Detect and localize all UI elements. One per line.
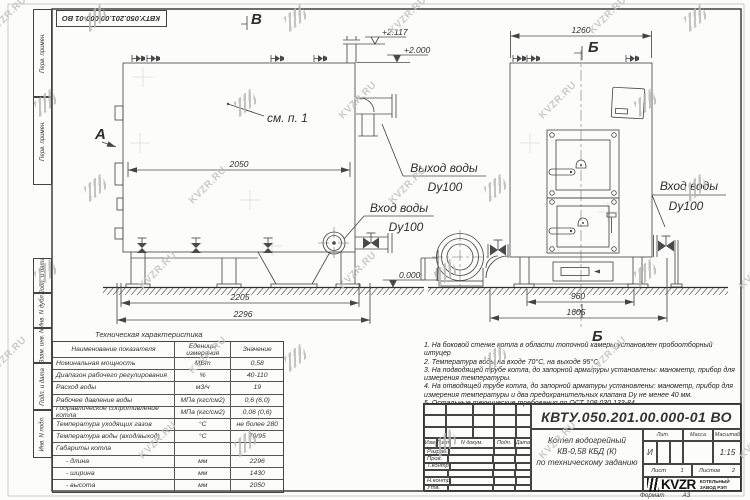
scale-header: Масштаб [713, 429, 742, 441]
boiler-front-view: 1260 Б Б [421, 25, 728, 345]
registration-crosses [130, 67, 618, 256]
kvzr-logo-text: KVZR [661, 477, 696, 492]
spec-row: Гидравлическое сопротивление котлаМПа (к… [53, 407, 283, 419]
blower-fan [421, 230, 488, 286]
sheet-value: 1 [681, 468, 684, 474]
note: 4. На отводящей трубе котла, до запорной… [424, 383, 740, 400]
top-stamp: КВТУ.050.201.00.000-01 ВО [56, 10, 167, 27]
furnace-door-lower [547, 198, 619, 253]
svg-text:см. п. 1: см. п. 1 [267, 111, 308, 125]
elevation-marks: +2.117 +2.000 0.000 [357, 27, 431, 288]
spec-table: Наименование показателя Еденицы измерени… [52, 341, 284, 493]
margin-box: Подп. и дата [33, 258, 52, 293]
elevation-mid: +2.000 [404, 45, 431, 55]
svg-text:2296: 2296 [233, 309, 253, 319]
margin-box: Подп. и дата [33, 363, 52, 410]
see-note-callout: см. п. 1 [227, 103, 308, 125]
title-block-right: Лит. Масса Масштаб И 1:15 Лист 1 Листов … [643, 429, 742, 492]
svg-text:Вход воды: Вход воды [660, 179, 718, 193]
margin-box: Взам. инв. N [33, 328, 52, 363]
org-line: ЗАВОД РЭП [700, 485, 730, 490]
top-stamp-number: КВТУ.050.201.00.000-01 ВО [62, 14, 160, 23]
spec-row: Диапазон рабочего регулирования%40-110 [53, 370, 283, 382]
inlet-valve-right-icon [654, 235, 683, 287]
boiler-body-side [123, 63, 355, 252]
margin-box: Перв. примен. [33, 97, 52, 185]
inspection-hatch [611, 87, 645, 119]
section-label-top: Б [588, 39, 599, 56]
svg-text:1260: 1260 [572, 25, 591, 35]
svg-text:Dy100: Dy100 [428, 180, 463, 194]
lit-value: И [643, 441, 657, 464]
boiler-side-view: +2.117 +2.000 0.000 2050 [94, 11, 486, 324]
spec-table-title: Техническая характеристика [95, 330, 203, 339]
manufacturer-logo: KVZR КОТЕЛЬНЫЙ ЗАВОД РЭП [643, 477, 742, 492]
furnace-door-upper [547, 130, 619, 198]
outlet-callout: Выход воды Dy100 [382, 124, 486, 194]
drawing-sheet: +2.117 +2.000 0.000 2050 [0, 0, 750, 500]
sheet-label: Лист [651, 468, 666, 474]
lit-header: Лит. [643, 429, 683, 441]
spec-row: - длинамм2296 [53, 456, 283, 468]
drain-valves-icon [137, 238, 273, 253]
support-frame-side [126, 252, 360, 288]
title-block-header-row: Изм. Лист N докум. Подп. Дата [424, 438, 531, 448]
scale-value: 1:15 [713, 441, 742, 464]
spec-row: Расход водым3/ч19 [53, 382, 283, 394]
spec-row: Температура воды (вход/выход)°С70/95 [53, 431, 283, 443]
svg-text:Dy100: Dy100 [389, 220, 424, 234]
view-label-a: А [94, 126, 106, 143]
dim-2050: 2050 [128, 159, 350, 177]
elevation-zero: 0.000 [399, 270, 421, 280]
outlet-pipe [343, 36, 396, 136]
spec-row: - высотамм2050 [53, 480, 283, 492]
side-pipe-valve-icon [355, 233, 392, 253]
product-name: Котел водогрейный КВ-0,58 КБД (К) по тех… [531, 429, 643, 492]
svg-text:2050: 2050 [229, 159, 249, 169]
technical-notes: 1. На боковой стенке котла в области топ… [424, 342, 740, 408]
fan-pipe-valve-icon [486, 240, 508, 278]
margin-box: Инв. N дубл. [33, 293, 52, 328]
svg-text:2205: 2205 [230, 292, 250, 302]
note: 2. Температура воды на входе 70°С, на вы… [424, 359, 740, 367]
svg-text:Выход воды: Выход воды [410, 161, 478, 175]
note: 3. На подводящей трубе котла, до запорно… [424, 367, 740, 384]
kvzr-flag-icon [647, 478, 659, 492]
sheets-label: Листов [699, 468, 720, 474]
format-note: Формат А3 [640, 492, 740, 499]
spec-row: Температура уходящих газов°Сне более 280 [53, 419, 283, 431]
spec-row: - ширинамм1430 [53, 468, 283, 480]
svg-text:1605: 1605 [567, 307, 586, 317]
safety-valves-icon [132, 55, 327, 62]
view-label-b: В [251, 11, 262, 28]
spec-header-row: Наименование показателя Еденицы измерени… [53, 342, 283, 358]
inlet-flange [318, 227, 350, 259]
inlet-right-callout: Вход воды Dy100 [652, 179, 726, 227]
inlet-callout: Вход воды Dy100 [344, 201, 434, 239]
org-line: КОТЕЛЬНЫЙ [700, 479, 730, 484]
document-number: КВТУ.050.201.00.000-01 ВО [531, 404, 742, 429]
sheets-value: 2 [732, 468, 735, 474]
mass-header: Масса [683, 429, 713, 441]
ash-door [553, 262, 613, 281]
spec-row: Номинальная мощностьМВт0,58 [53, 358, 283, 370]
spec-row: Габариты котла [53, 443, 283, 455]
safety-valves-front-icon [513, 55, 639, 62]
title-block-signature-rows: Разраб. Пров. Т.контр. Н.контр. Утв. [424, 448, 531, 492]
note: 1. На боковой стенке котла в области топ… [424, 342, 740, 359]
margin-box: Перв. примен. [33, 9, 52, 97]
title-block: Изм. Лист N докум. Подп. Дата Разраб. Пр… [423, 403, 741, 491]
svg-text:Dy100: Dy100 [669, 199, 704, 213]
svg-text:Вход воды: Вход воды [370, 201, 428, 215]
svg-text:960: 960 [571, 291, 585, 301]
elevation-top: +2.117 [382, 27, 408, 37]
margin-box: Инв. N подл. [33, 410, 52, 458]
title-block-grid [424, 404, 531, 438]
spec-row: Рабочее давление водыМПа (кгс/см2)0,6 (6… [53, 395, 283, 407]
